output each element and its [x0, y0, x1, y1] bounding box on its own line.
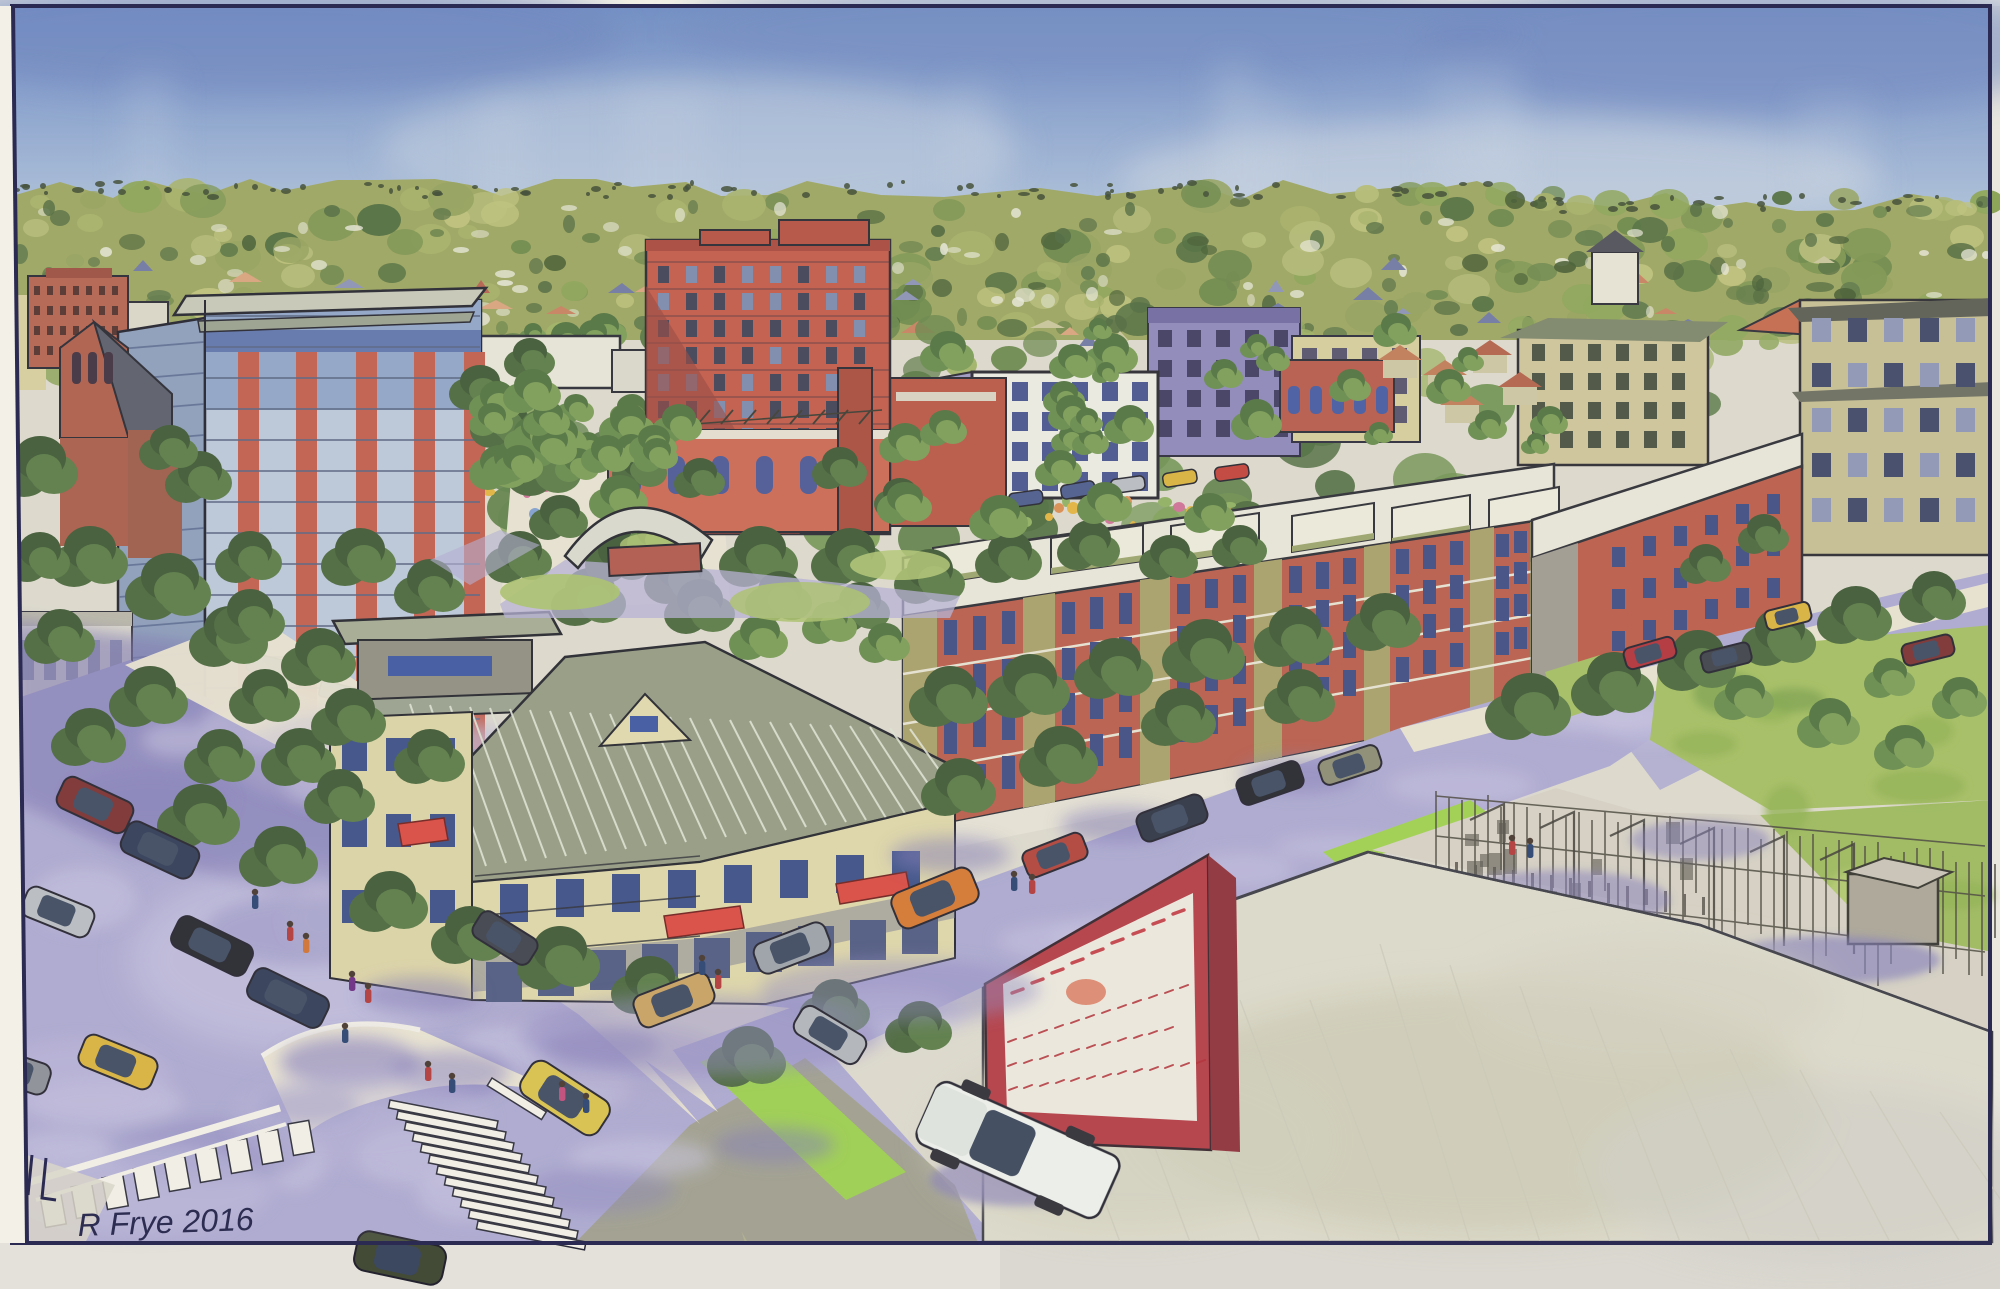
svg-text:R Frye 2016: R Frye 2016: [77, 1201, 254, 1243]
